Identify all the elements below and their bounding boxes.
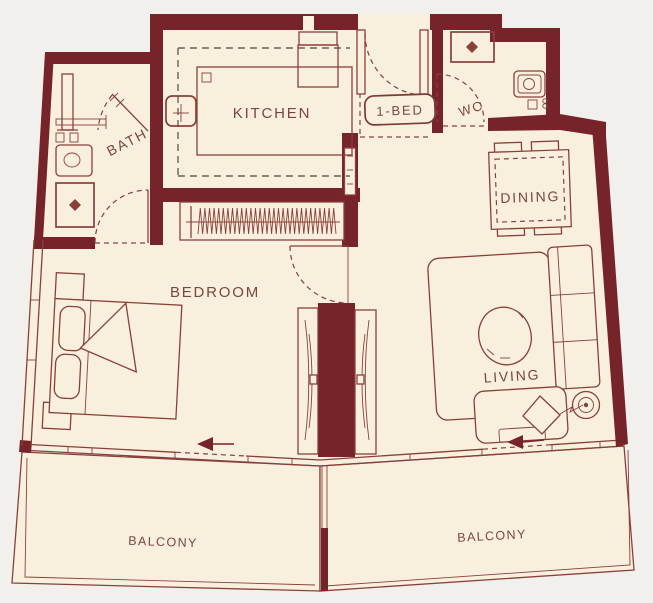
entry-door-leaf xyxy=(420,30,428,96)
dining-area: DINING xyxy=(488,141,571,237)
kitchen-north-wall xyxy=(150,14,358,30)
tv-unit-right xyxy=(355,310,376,454)
dining-room-label: DINING xyxy=(500,188,560,206)
sofa xyxy=(548,245,601,389)
kitchen-south-wall xyxy=(150,188,360,202)
balcony-left xyxy=(12,452,320,591)
balcony-left-label: BALCONY xyxy=(128,534,198,550)
closet xyxy=(180,202,344,240)
balcony-right xyxy=(320,446,634,591)
bath-north-wall xyxy=(45,52,152,64)
tv-unit-left xyxy=(298,308,318,454)
wall-window-slot xyxy=(303,16,314,30)
bath-east-wall xyxy=(150,14,163,245)
floor-plan-image: BATH KITCHEN 1-BED xyxy=(0,0,653,603)
unit-entry-badge: 1-BED xyxy=(364,94,435,125)
wc-east-wall xyxy=(546,40,560,122)
wardrobe-partition xyxy=(318,303,355,457)
kitchen-room-label: KITCHEN xyxy=(233,105,311,122)
bedroom-room-label: BEDROOM xyxy=(170,284,260,301)
west-wall-stub xyxy=(19,440,32,453)
entry-door-jamb xyxy=(357,30,365,94)
floor-plan-svg: BATH KITCHEN 1-BED xyxy=(0,0,653,603)
unit-badge-label: 1-BED xyxy=(376,102,424,119)
